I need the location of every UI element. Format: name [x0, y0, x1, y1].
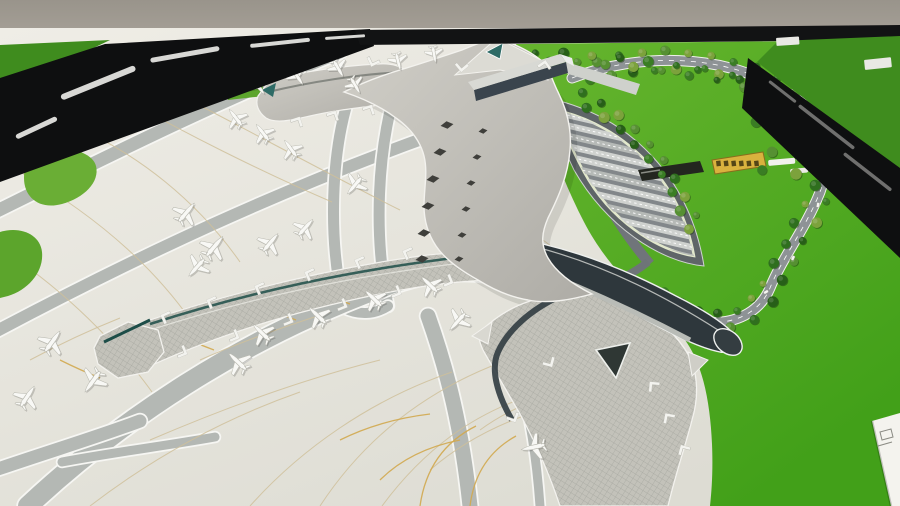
tree-highlight: [671, 175, 675, 179]
tree-highlight: [694, 213, 697, 216]
sign-character: [746, 160, 751, 166]
tree-highlight: [615, 111, 620, 116]
tree-highlight: [661, 157, 665, 161]
tree-highlight: [631, 126, 635, 130]
tree-highlight: [669, 188, 673, 192]
model-scene: [0, 0, 900, 506]
tree-highlight: [574, 59, 577, 62]
photo-of-airport-scale-model: [0, 0, 900, 506]
tree-highlight: [589, 52, 593, 56]
tree-highlight: [685, 50, 689, 54]
tree-highlight: [685, 225, 689, 229]
tree-highlight: [644, 57, 649, 62]
tree-highlight: [661, 47, 665, 51]
tree-highlight: [629, 63, 634, 68]
tree-highlight: [740, 83, 745, 88]
tree-highlight: [617, 126, 621, 130]
tree-highlight: [583, 104, 587, 108]
neighbor-model-building: [776, 36, 800, 46]
tree-highlight: [686, 72, 690, 76]
tree-highlight: [598, 100, 602, 104]
tree-highlight: [730, 59, 733, 62]
tree-highlight: [714, 78, 717, 81]
tree-highlight: [659, 67, 662, 70]
tree: [757, 165, 767, 175]
tree-highlight: [734, 308, 737, 311]
tree-highlight: [790, 219, 795, 224]
tree-highlight: [737, 76, 741, 80]
tree-highlight: [769, 298, 774, 303]
tree-highlight: [645, 155, 649, 159]
tree: [767, 147, 778, 158]
tree-highlight: [730, 73, 733, 76]
tree-highlight: [533, 50, 536, 53]
tree-highlight: [695, 67, 698, 70]
tree-highlight: [617, 55, 621, 59]
tree-highlight: [600, 113, 605, 118]
sign-character: [754, 160, 759, 166]
tree-highlight: [708, 53, 712, 57]
tree-highlight: [652, 68, 655, 71]
tree-highlight: [813, 219, 818, 224]
tree-highlight: [647, 141, 650, 144]
tree-highlight: [823, 199, 826, 202]
sign-character: [716, 160, 721, 166]
sign-character: [731, 160, 736, 166]
tree-highlight: [559, 49, 564, 54]
tree-highlight: [749, 296, 752, 299]
vehicle: [816, 202, 820, 207]
tree-highlight: [770, 259, 775, 264]
tree-highlight: [659, 171, 663, 175]
tree-highlight: [778, 276, 783, 281]
tree-highlight: [782, 240, 786, 244]
tree-highlight: [681, 193, 686, 198]
sign-character: [739, 160, 744, 166]
tree-highlight: [800, 238, 803, 241]
tree-highlight: [602, 61, 606, 65]
tree-highlight: [714, 310, 718, 314]
tree-highlight: [802, 202, 805, 205]
sign-character: [724, 160, 729, 166]
tree-highlight: [702, 66, 705, 69]
tree-highlight: [715, 70, 719, 74]
tree-highlight: [639, 49, 643, 53]
tree-highlight: [631, 141, 635, 145]
tree-highlight: [760, 281, 763, 284]
tree-highlight: [751, 316, 755, 320]
tree-highlight: [676, 207, 681, 212]
tree-highlight: [811, 181, 816, 186]
tree-highlight: [579, 89, 583, 93]
tree-highlight: [674, 63, 677, 66]
tree: [790, 168, 801, 179]
